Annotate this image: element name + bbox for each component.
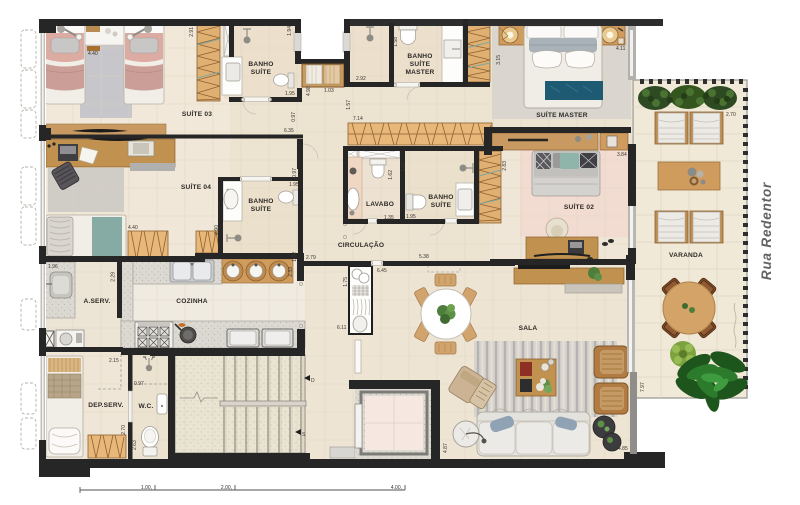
svg-text:1.03: 1.03 bbox=[324, 88, 334, 94]
svg-text:BANHO: BANHO bbox=[428, 194, 453, 201]
svg-text:5.38: 5.38 bbox=[419, 254, 429, 260]
svg-text:6.45: 6.45 bbox=[377, 268, 387, 274]
svg-text:1.00,: 1.00, bbox=[141, 485, 152, 491]
svg-text:1.75: 1.75 bbox=[343, 277, 349, 287]
svg-text:2.63: 2.63 bbox=[132, 440, 138, 450]
svg-text:SUÍTE MASTER: SUÍTE MASTER bbox=[536, 110, 588, 119]
svg-text:2.92: 2.92 bbox=[356, 76, 366, 82]
svg-text:COZINHA: COZINHA bbox=[176, 298, 207, 305]
svg-text:7.97: 7.97 bbox=[640, 382, 646, 392]
svg-text:D: D bbox=[311, 378, 315, 384]
svg-text:BANHO: BANHO bbox=[407, 53, 432, 60]
svg-text:SUÍTE: SUÍTE bbox=[251, 204, 272, 213]
svg-text:BANHO: BANHO bbox=[248, 198, 273, 205]
svg-text:2.91: 2.91 bbox=[189, 27, 195, 37]
svg-text:CIRCULAÇÃO: CIRCULAÇÃO bbox=[338, 240, 384, 249]
svg-text:4.40: 4.40 bbox=[128, 225, 138, 231]
svg-text:2.70: 2.70 bbox=[121, 425, 127, 435]
svg-text:1.92: 1.92 bbox=[292, 252, 298, 262]
svg-text:1.95: 1.95 bbox=[406, 214, 416, 220]
svg-text:BANHO: BANHO bbox=[248, 61, 273, 68]
svg-text:1.86: 1.86 bbox=[401, 162, 407, 172]
svg-text:2.29: 2.29 bbox=[111, 272, 117, 282]
svg-text:SUÍTE: SUÍTE bbox=[431, 200, 452, 209]
svg-text:0.97: 0.97 bbox=[134, 381, 144, 387]
svg-text:SUÍTE: SUÍTE bbox=[251, 67, 272, 76]
svg-text:VARANDA: VARANDA bbox=[669, 252, 703, 259]
svg-text:4.11: 4.11 bbox=[616, 46, 626, 52]
svg-text:4.85: 4.85 bbox=[618, 446, 628, 452]
svg-text:2.33: 2.33 bbox=[288, 267, 294, 277]
svg-text:6.35: 6.35 bbox=[284, 128, 294, 134]
svg-text:1.96: 1.96 bbox=[48, 264, 58, 270]
svg-text:1.35: 1.35 bbox=[384, 215, 394, 221]
svg-text:SALA: SALA bbox=[519, 325, 538, 332]
svg-text:1.58: 1.58 bbox=[393, 37, 399, 47]
svg-text:1.57: 1.57 bbox=[346, 100, 352, 110]
svg-text:2.70: 2.70 bbox=[726, 112, 736, 118]
svg-text:1.95: 1.95 bbox=[289, 182, 299, 188]
svg-text:4.87: 4.87 bbox=[443, 443, 449, 453]
svg-text:1.95: 1.95 bbox=[285, 91, 295, 97]
svg-text:0.97: 0.97 bbox=[291, 112, 297, 122]
svg-text:SUÍTE: SUÍTE bbox=[410, 59, 431, 68]
svg-text:Rua Redentor: Rua Redentor bbox=[759, 182, 774, 280]
svg-text:3.15: 3.15 bbox=[496, 55, 502, 65]
svg-text:2.83: 2.83 bbox=[502, 161, 508, 171]
svg-text:W.C.: W.C. bbox=[138, 403, 153, 410]
svg-text:0.97: 0.97 bbox=[292, 168, 298, 178]
svg-text:SUÍTE 03: SUÍTE 03 bbox=[182, 109, 212, 118]
svg-text:7.14: 7.14 bbox=[353, 116, 363, 122]
svg-text:2.79: 2.79 bbox=[306, 255, 316, 261]
svg-text:LAVABO: LAVABO bbox=[366, 201, 394, 208]
svg-text:4.98: 4.98 bbox=[306, 86, 312, 96]
svg-text:A.SERV.: A.SERV. bbox=[83, 298, 110, 305]
svg-text:MASTER: MASTER bbox=[405, 69, 434, 76]
svg-text:6.11: 6.11 bbox=[337, 325, 347, 331]
svg-text:4.40: 4.40 bbox=[88, 51, 98, 57]
svg-text:2.00,: 2.00, bbox=[221, 485, 232, 491]
svg-text:SUÍTE 02: SUÍTE 02 bbox=[564, 202, 594, 211]
svg-text:1.94: 1.94 bbox=[287, 26, 293, 36]
svg-text:DEP.SERV.: DEP.SERV. bbox=[88, 402, 123, 409]
svg-text:SUÍTE 04: SUÍTE 04 bbox=[181, 182, 211, 191]
svg-text:2.15: 2.15 bbox=[109, 358, 119, 364]
svg-text:4.00,: 4.00, bbox=[391, 485, 402, 491]
svg-text:3.84: 3.84 bbox=[617, 152, 627, 158]
svg-text:1.62: 1.62 bbox=[388, 170, 394, 180]
svg-text:2.90: 2.90 bbox=[214, 225, 220, 235]
